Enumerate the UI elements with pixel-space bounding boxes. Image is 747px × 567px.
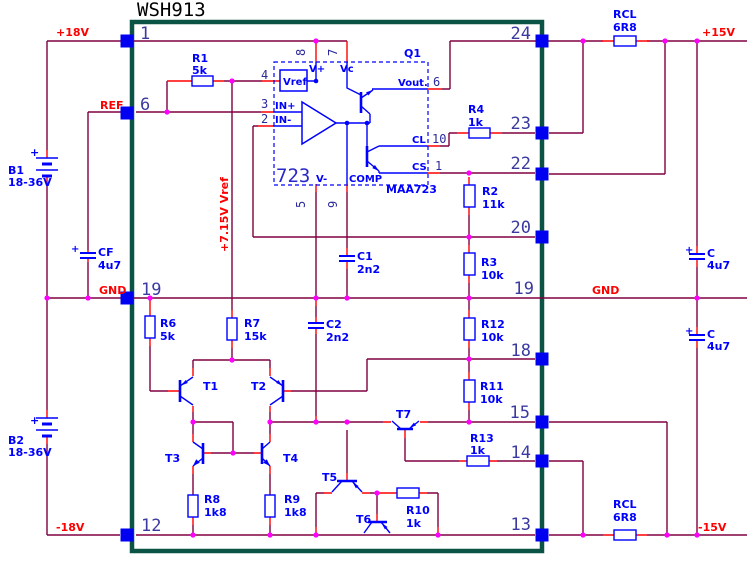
t6-label: T6 — [356, 513, 372, 526]
c-bottom-plus: + — [685, 326, 693, 337]
pad-24 — [536, 35, 549, 48]
r12-body — [464, 318, 475, 340]
reg-pin-1: 1 — [435, 159, 442, 173]
pin-22: 22 — [511, 154, 531, 174]
net-gnd-left: GND — [99, 284, 126, 297]
pin-18: 18 — [511, 341, 531, 361]
t3-arrow — [193, 459, 200, 466]
c2-name: C2 — [326, 318, 342, 331]
r10-value: 1k — [406, 517, 422, 530]
r11-body — [464, 380, 475, 402]
pad-18 — [536, 353, 549, 366]
r3-value: 10k — [481, 269, 504, 282]
t2-arrow — [276, 380, 282, 386]
r9-name: R9 — [284, 493, 300, 506]
pin-19-left: 19 — [141, 280, 161, 300]
net-ref: REF — [100, 99, 124, 112]
reg-vref-label: Vref — [283, 77, 307, 88]
r8-body — [188, 495, 198, 517]
net-gnd-right: GND — [592, 284, 619, 297]
reg-in-plus: IN+ — [275, 101, 295, 112]
reg-vout: Vout. — [398, 78, 428, 89]
pin-15: 15 — [510, 403, 530, 423]
pin-1: 1 — [140, 24, 150, 44]
pin-14: 14 — [511, 443, 531, 463]
net-plus18: +18V — [56, 26, 90, 39]
r11-name: R11 — [480, 380, 504, 393]
net-plus15: +15V — [702, 26, 736, 39]
c-bottom-value: 4u7 — [707, 340, 730, 353]
b2-plus: + — [30, 414, 39, 427]
c1-name: C1 — [357, 250, 373, 263]
r6-value: 5k — [160, 330, 176, 343]
r7-value: 15k — [244, 330, 267, 343]
cf-plus: + — [71, 244, 79, 255]
r12-name: R12 — [481, 318, 505, 331]
reg-pin-8: 8 — [294, 49, 308, 56]
rcl-bottom-body — [614, 530, 636, 540]
opamp-triangle — [302, 102, 336, 144]
rcl-bottom-value: 6R8 — [613, 511, 637, 524]
r10-body — [397, 488, 419, 498]
r7-name: R7 — [244, 317, 260, 330]
t1-label: T1 — [203, 380, 218, 393]
t7-label: T7 — [396, 408, 411, 421]
reg-in-minus: IN- — [275, 115, 291, 126]
reg-pin-9: 9 — [326, 201, 340, 208]
cf-value: 4u7 — [98, 259, 121, 272]
r13-body — [467, 456, 489, 466]
t4-label: T4 — [283, 452, 299, 465]
r1-body — [192, 76, 213, 86]
reg-pin-3: 3 — [261, 97, 268, 111]
r12-value: 10k — [481, 331, 504, 344]
pad-22 — [536, 168, 549, 181]
t5-label: T5 — [322, 471, 337, 484]
r2-value: 11k — [482, 198, 505, 211]
net-minus18: -18V — [56, 521, 85, 534]
schematic-page: WSH913 +18V REF GND -18V +15V GND -15V +… — [0, 0, 747, 567]
reg-pin-2: 2 — [261, 112, 268, 126]
pad-20 — [536, 231, 549, 244]
r6-body — [145, 316, 155, 338]
r11-value: 10k — [480, 393, 503, 406]
pad-23 — [536, 127, 549, 140]
r10-name: R10 — [406, 504, 430, 517]
reg-723: 723 — [276, 165, 310, 187]
net-vref-rail: +7.15V Vref — [218, 177, 231, 252]
r1-value: 5k — [192, 64, 208, 77]
pad-13 — [536, 529, 549, 542]
c2-value: 2n2 — [326, 331, 349, 344]
reg-pin-5: 5 — [294, 201, 308, 208]
r3-body — [464, 253, 475, 275]
reg-pin-10: 10 — [432, 132, 446, 146]
reg-comp: COMP — [349, 174, 382, 185]
reg-cl: CL — [412, 135, 426, 146]
reg-pin-4: 4 — [261, 68, 268, 82]
pin-20: 20 — [511, 218, 531, 238]
reg-part-number: MAA723 — [386, 183, 437, 196]
rcl-top-name: RCL — [613, 8, 637, 21]
c-top-value: 4u7 — [707, 259, 730, 272]
rcl-top-body — [614, 36, 636, 46]
r4-value: 1k — [468, 116, 484, 129]
pad-15 — [536, 416, 549, 429]
b2-value: 18-36V — [8, 446, 52, 459]
pad-1 — [121, 35, 134, 48]
net-minus15: -15V — [698, 521, 727, 534]
r4-body — [469, 128, 490, 138]
reg-v-minus: V- — [316, 174, 327, 185]
t2-label: T2 — [251, 380, 266, 393]
b1-value: 18-36V — [8, 176, 52, 189]
rcl-bottom-name: RCL — [613, 498, 637, 511]
r2-name: R2 — [482, 185, 498, 198]
reg-vc: Vc — [340, 64, 354, 75]
reg-cs: CS — [412, 162, 427, 173]
c1-value: 2n2 — [357, 263, 380, 276]
r3-name: R3 — [481, 256, 497, 269]
r9-body — [265, 495, 275, 517]
pin-6: 6 — [140, 95, 150, 115]
reg-pin-7: 7 — [326, 49, 340, 56]
reg-pin-6: 6 — [433, 75, 440, 89]
r6-name: R6 — [160, 317, 176, 330]
pin-13: 13 — [511, 515, 531, 535]
rcl-top-value: 6R8 — [613, 21, 637, 34]
page-title: WSH913 — [137, 0, 206, 21]
b1-plus: + — [30, 146, 39, 159]
pin-12: 12 — [141, 516, 161, 536]
r9-value: 1k8 — [284, 506, 307, 519]
cf-name: CF — [98, 246, 114, 259]
pin-19-right: 19 — [514, 279, 534, 299]
r4-name: R4 — [468, 103, 484, 116]
pad-12 — [121, 529, 134, 542]
r8-name: R8 — [204, 493, 220, 506]
transistor-arrows — [181, 90, 416, 529]
schematic-canvas: WSH913 +18V REF GND -18V +15V GND -15V +… — [0, 0, 747, 567]
r8-value: 1k8 — [204, 506, 227, 519]
r13-value: 1k — [470, 444, 486, 457]
q1-label: Q1 — [404, 47, 421, 60]
reg-v-plus: V+ — [309, 64, 325, 75]
pin-24: 24 — [511, 24, 531, 44]
c-top-plus: + — [685, 245, 693, 256]
pin-23: 23 — [511, 114, 531, 134]
pad-14 — [536, 455, 549, 468]
r7-body — [227, 318, 237, 340]
t3-label: T3 — [165, 452, 180, 465]
r2-body — [464, 185, 475, 207]
